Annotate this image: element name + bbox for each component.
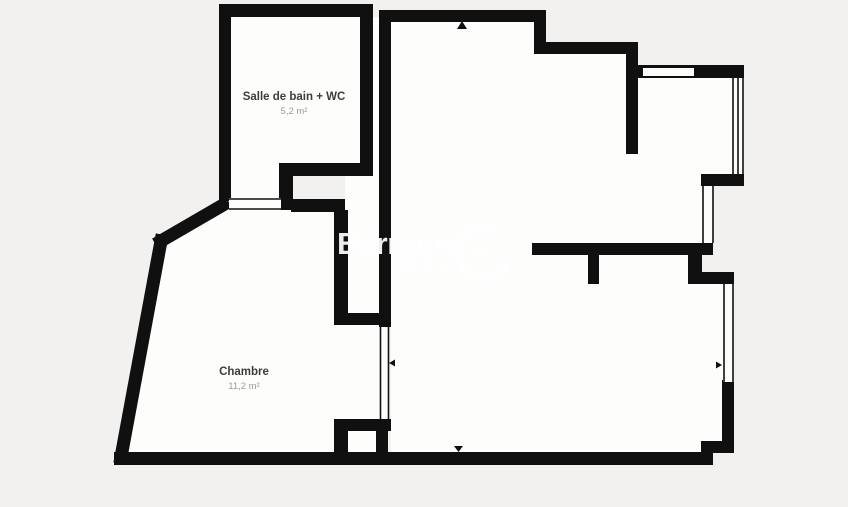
shaft-strip — [373, 17, 379, 177]
right-window-mid — [702, 186, 714, 243]
middle-wall — [532, 243, 713, 255]
left-opening — [379, 327, 390, 419]
main-room-left-wall — [379, 10, 391, 327]
notch-right-wall — [376, 431, 388, 453]
bathroom-label: Salle de bain + WC — [243, 91, 346, 103]
main-room-top-wall — [379, 10, 546, 22]
alcove-area — [334, 325, 379, 419]
bottom-wall — [114, 452, 713, 465]
chambre-area: 11,2 m² — [228, 381, 260, 392]
right-window-low — [723, 284, 734, 382]
partition-fin — [626, 42, 638, 154]
bathroom-door-column — [279, 163, 293, 210]
bathroom-left-wall — [219, 4, 231, 201]
wall-notch — [348, 431, 376, 452]
bathroom-right-wall — [360, 4, 373, 176]
right-window-large — [732, 78, 744, 174]
bathroom-top-wall — [219, 4, 373, 17]
right-block-horizontal — [688, 272, 734, 284]
bathroom-bottom-wall — [281, 163, 373, 176]
right-step-wall — [701, 174, 744, 186]
middle-wall-stub — [588, 255, 599, 284]
watermark-sub: IMMO — [394, 255, 451, 275]
bottom-right-step-column — [701, 441, 713, 465]
bathroom-area: 5,2 m² — [281, 106, 308, 117]
top-step-wall — [534, 42, 638, 54]
top-window — [643, 68, 694, 76]
floor-plan: Salle de bain + WC 5,2 m² Chambre 11,2 m… — [0, 0, 848, 507]
bathroom-door-opening — [229, 198, 281, 210]
chambre-label: Chambre — [219, 366, 269, 378]
